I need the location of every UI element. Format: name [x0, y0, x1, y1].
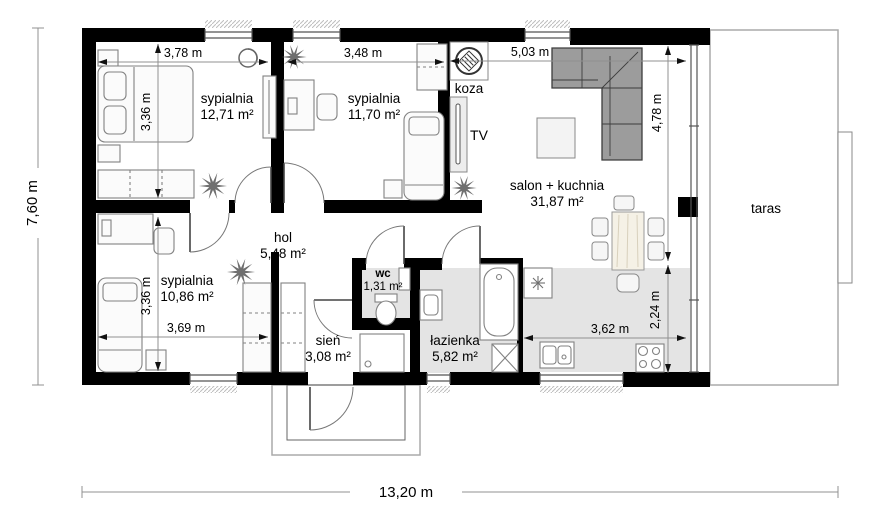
dim-bedroom1-width: 3,78 m: [164, 46, 202, 60]
vestibule-wardrobe: [281, 283, 305, 372]
door-swing-bedroom3: [190, 213, 229, 252]
chair: [648, 242, 664, 260]
window-kitchen: [540, 373, 623, 393]
shower-drain: [365, 361, 371, 367]
vestibule-name: sień: [316, 333, 341, 348]
furniture-living: [450, 42, 664, 292]
dim-bedroom3-width: 3,69 m: [167, 321, 205, 335]
dim-living-width: 5,03 m: [511, 45, 549, 59]
pillow: [104, 72, 126, 100]
chair: [592, 218, 608, 236]
computer: [288, 98, 297, 114]
chair: [592, 242, 608, 260]
hall-area: 5,48 m²: [260, 246, 306, 261]
bathroom-area: 5,82 m²: [432, 349, 478, 364]
dim-bedroom1-height: 3,36 m: [139, 93, 153, 131]
window-bathroom: [427, 373, 450, 393]
coffee-table: [537, 118, 575, 158]
pillow: [104, 106, 126, 134]
plant-icon: [227, 259, 255, 286]
tv-screen: [456, 104, 460, 164]
nightstand: [98, 145, 120, 162]
built-in-wardrobe: [243, 283, 271, 372]
terrace-step: [838, 132, 852, 283]
nightstand: [98, 50, 118, 66]
bedroom3-area: 10,86 m²: [160, 289, 214, 304]
nightstand: [384, 180, 402, 198]
door-swing-wc: [366, 226, 404, 264]
wardrobe: [98, 170, 194, 198]
burner: [640, 361, 647, 368]
stove-label: koza: [455, 81, 484, 96]
chair: [614, 196, 634, 210]
entry-porch: [272, 385, 420, 455]
bedroom2-name: sypialnia: [348, 91, 401, 106]
bedroom2-area: 11,70 m²: [348, 107, 401, 122]
door-swing-bedroom2: [284, 163, 324, 203]
door-swing-bedroom1: [235, 167, 271, 203]
plant-icon: [281, 45, 306, 69]
wc-area: 1,31 m²: [364, 281, 403, 293]
lamp-icon: [239, 49, 257, 67]
nightstand: [146, 350, 166, 370]
bedroom1-name: sypialnia: [201, 91, 254, 106]
porch-outer: [272, 385, 420, 455]
bedroom3-name: sypialnia: [161, 273, 214, 288]
stool: [617, 274, 639, 292]
dim-bedroom3-height: 3,36 m: [139, 277, 153, 315]
porch-inner: [287, 385, 405, 440]
dim-living-height: 4,78 m: [650, 94, 664, 132]
dim-bedroom2-width: 3,48 m: [344, 46, 382, 60]
furniture-bedroom2: [284, 44, 447, 200]
terrace: taras: [710, 30, 852, 385]
burner: [639, 347, 648, 356]
chair: [317, 94, 337, 120]
hall-name: hol: [274, 230, 292, 245]
door-swing-entrance: [310, 387, 353, 430]
dim-overall-width: 13,20 m: [379, 484, 433, 501]
washbasin: [424, 295, 438, 315]
burner: [653, 348, 660, 355]
burner: [652, 360, 661, 369]
bathroom-name: łazienka: [430, 333, 480, 348]
dim-overall-height: 7,60 m: [24, 180, 41, 226]
living-name: salon + kuchnia: [510, 178, 605, 193]
bedroom1-area: 12,71 m²: [200, 107, 254, 122]
window-bedroom3: [190, 373, 237, 393]
tv-label: TV: [470, 127, 489, 143]
window-living: [525, 20, 570, 41]
window-bedroom1: [205, 20, 252, 41]
bathtub-faucet: [497, 275, 502, 280]
pillow: [409, 117, 439, 135]
window-bedroom2: [293, 20, 340, 41]
living-area: 31,87 m²: [530, 194, 584, 209]
pillow: [103, 283, 137, 301]
terrace-label: taras: [751, 201, 781, 216]
freezer-star-icon: [531, 276, 545, 290]
furniture-bedroom1: [98, 50, 276, 198]
floor-plan-page: taras: [0, 0, 882, 528]
sink-faucet: [562, 355, 566, 359]
chair: [154, 228, 174, 254]
computer: [102, 220, 111, 236]
floor-plan-svg: taras: [0, 0, 882, 528]
wc-name: wc: [374, 268, 391, 280]
dim-kitchen-width: 3,62 m: [591, 322, 629, 336]
dim-kitchen-height: 2,24 m: [648, 291, 662, 329]
sink-bowl: [543, 346, 556, 364]
plant-icon: [199, 173, 227, 200]
door-swing-bathroom: [442, 226, 480, 264]
vestibule-area: 3,08 m²: [305, 349, 351, 364]
toilet-bowl: [376, 301, 396, 325]
chair: [648, 218, 664, 236]
plant-icon: [451, 176, 476, 200]
